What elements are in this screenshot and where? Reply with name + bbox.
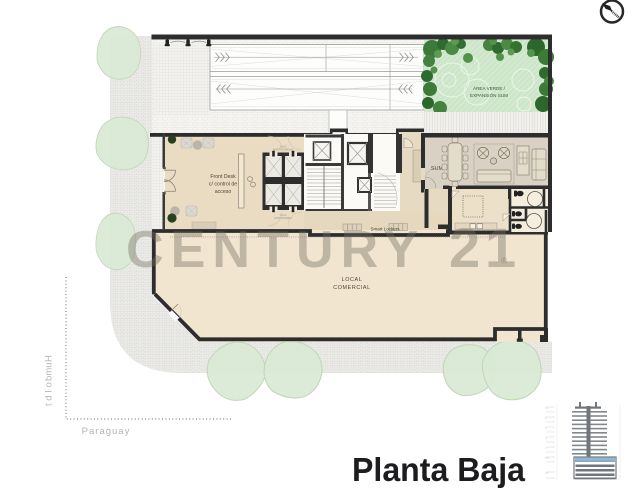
svg-text:2: 2 [449, 216, 480, 279]
svg-text:10: 10 [545, 406, 549, 410]
svg-text:MONTACARGAS: MONTACARGAS [273, 148, 293, 152]
svg-text:1: 1 [485, 216, 516, 279]
svg-text:1S: 1S [545, 471, 549, 475]
svg-text:Planta Baja: Planta Baja [352, 451, 526, 488]
svg-text:CENTURY: CENTURY [126, 221, 418, 279]
svg-text:SUM: SUM [431, 166, 444, 172]
svg-text:acceso: acceso [215, 189, 232, 195]
svg-text:o: o [44, 382, 55, 387]
svg-text:l: l [44, 390, 55, 392]
svg-text:d: d [44, 395, 55, 400]
svg-text:Paraguay: Paraguay [82, 426, 131, 437]
svg-text:m: m [44, 368, 55, 376]
svg-text:H: H [44, 355, 55, 362]
svg-text:COMERCIAL: COMERCIAL [333, 285, 370, 291]
svg-text:PB: PB [545, 456, 549, 460]
svg-text:c/ control de: c/ control de [209, 182, 237, 188]
svg-text:t: t [44, 403, 55, 406]
svg-text:ÁREA VERDE /: ÁREA VERDE / [473, 85, 506, 91]
svg-text:EXPANSIÓN SUM: EXPANSIÓN SUM [470, 92, 508, 98]
svg-text:Front Desk: Front Desk [210, 174, 236, 180]
svg-text:®: ® [501, 256, 508, 266]
svg-text:u: u [44, 362, 55, 367]
svg-text:b: b [44, 376, 55, 381]
